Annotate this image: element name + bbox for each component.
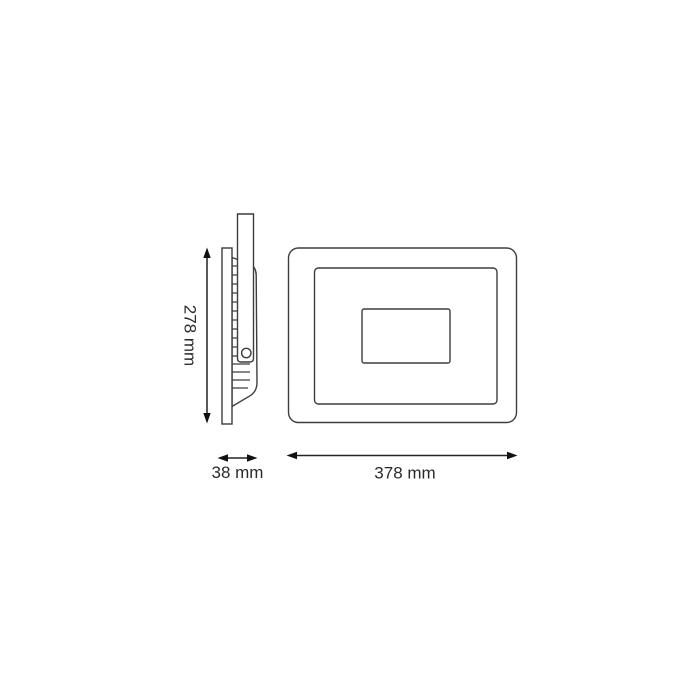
side-front-frame <box>222 248 232 424</box>
front-view <box>289 248 517 423</box>
arrow-right-icon <box>247 454 258 462</box>
front-led-window <box>362 309 450 363</box>
width-dimension: 378 mm <box>287 452 518 483</box>
depth-dimension-label: 38 mm <box>212 463 264 482</box>
bracket-pivot-screw-icon <box>242 348 251 357</box>
arrow-up-icon <box>203 248 210 259</box>
arrow-left-icon <box>287 452 298 460</box>
height-dimension-label: 278 mm <box>181 305 200 366</box>
arrow-down-icon <box>203 413 210 424</box>
diagram-canvas: 278 mm 38 mm 378 mm <box>0 0 700 700</box>
mounting-bracket-arm <box>238 214 254 362</box>
arrow-left-icon <box>218 454 229 462</box>
floodlight-dimension-diagram: 278 mm 38 mm 378 mm <box>0 0 700 700</box>
arrow-right-icon <box>507 452 518 460</box>
side-view <box>222 214 257 424</box>
width-dimension-label: 378 mm <box>374 464 435 483</box>
height-dimension: 278 mm <box>181 248 211 424</box>
depth-dimension: 38 mm <box>212 454 264 482</box>
